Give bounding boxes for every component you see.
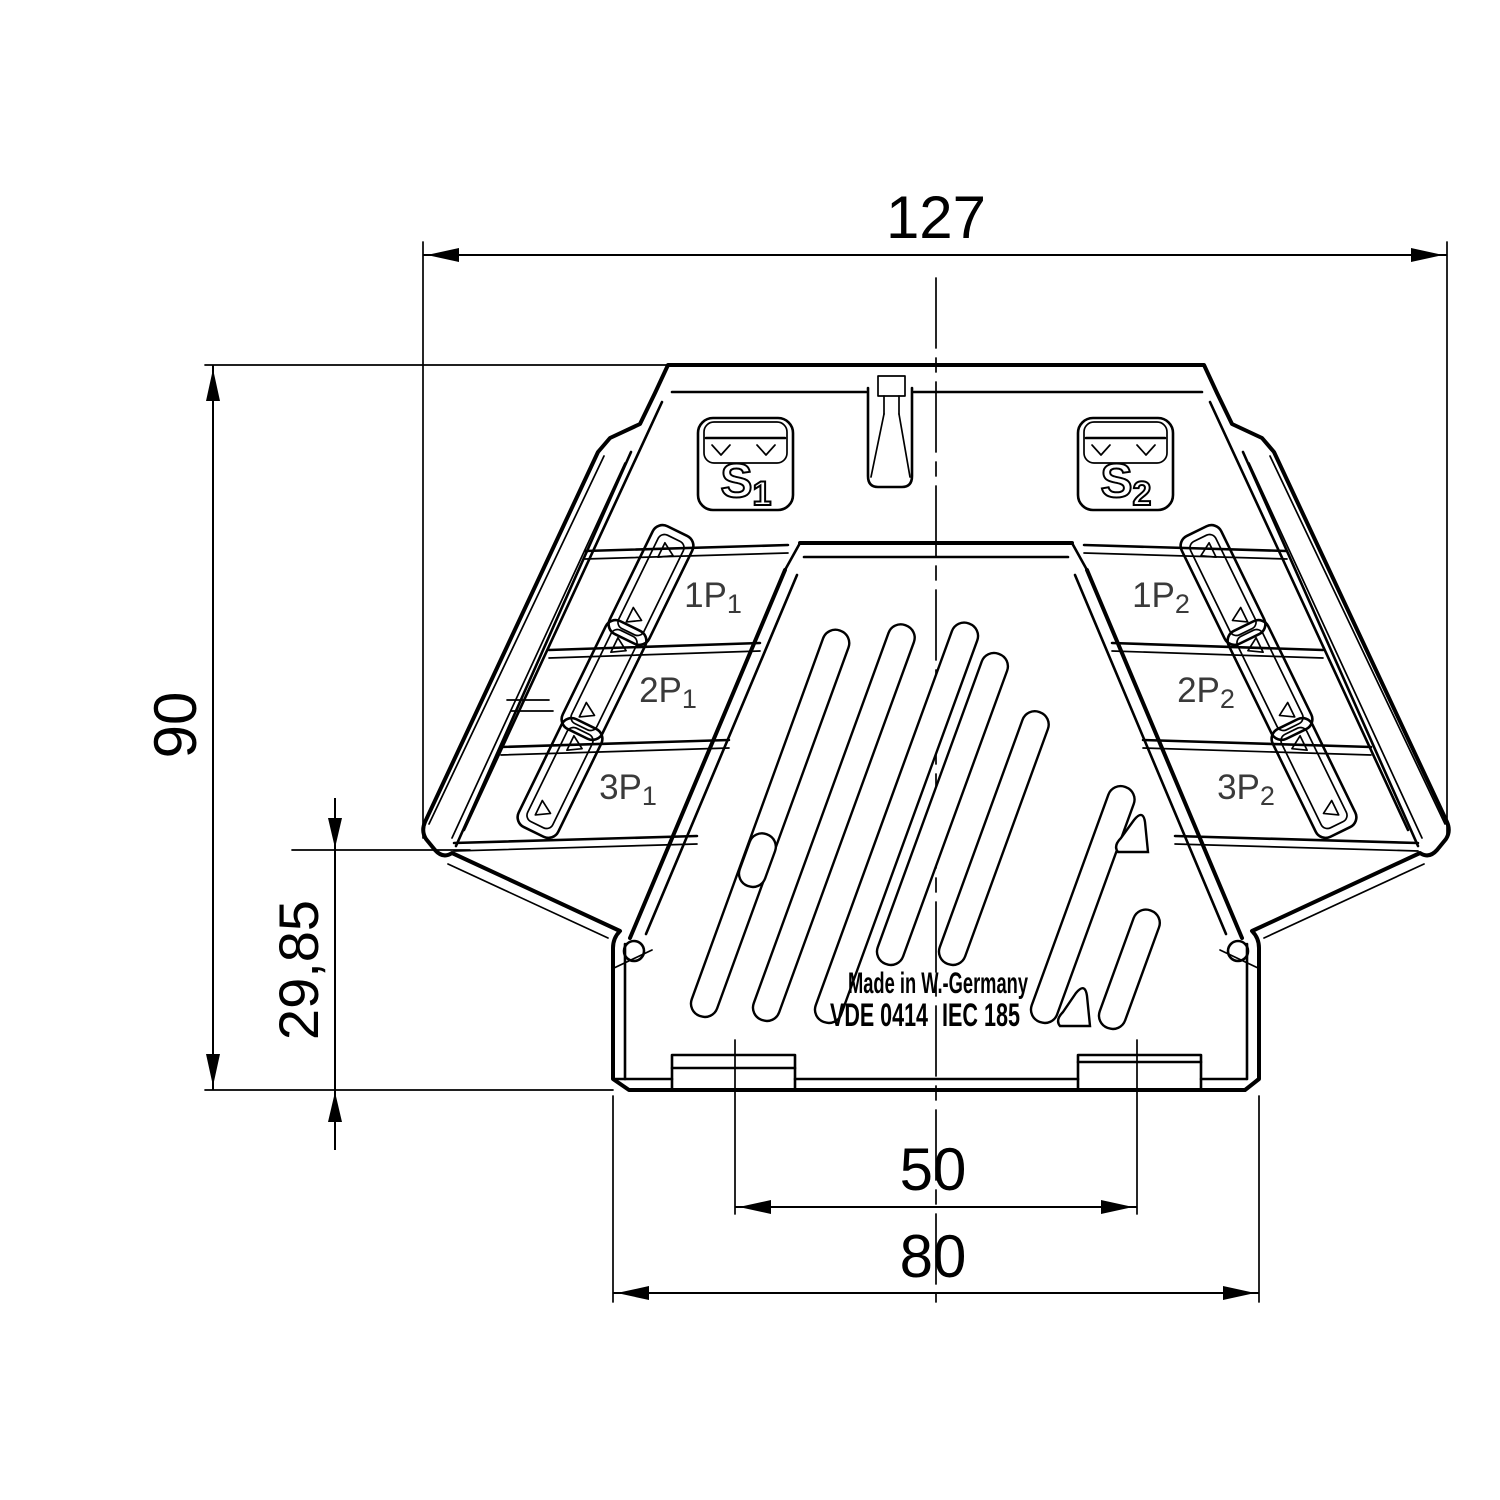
dim-29-85-label: 29,85 — [267, 900, 330, 1040]
top-latch-slot — [868, 376, 912, 487]
terminal-s1: S1 — [698, 418, 793, 513]
transformer-dimension-drawing: 127 90 29,85 50 — [0, 0, 1500, 1500]
label-2p2: 2P2 — [1177, 671, 1235, 714]
branding-text: Made in W.-Germany VDE 0414 IEC 185 — [830, 967, 1028, 1033]
dim-29-85: 29,85 — [267, 798, 470, 1150]
dim-80-label: 80 — [900, 1223, 967, 1290]
standard-vde-text: VDE 0414 — [830, 997, 928, 1033]
label-3p1: 3P1 — [599, 768, 657, 811]
right-mounting-foot — [1078, 1055, 1201, 1090]
label-2p1: 2P1 — [639, 671, 697, 714]
label-3p2: 3P2 — [1217, 768, 1275, 811]
dim-90-label: 90 — [142, 692, 209, 759]
terminal-s2: S2 — [1078, 418, 1173, 513]
technical-drawing-page: 127 90 29,85 50 — [0, 0, 1500, 1500]
label-1p2: 1P2 — [1132, 576, 1190, 619]
dim-127-label: 127 — [886, 184, 986, 251]
right-slope-inner-wall — [1210, 402, 1408, 830]
made-in-text: Made in W.-Germany — [848, 967, 1028, 1000]
left-mounting-foot — [672, 1055, 795, 1090]
dim-50-label: 50 — [900, 1136, 967, 1203]
label-1p1: 1P1 — [684, 576, 742, 619]
left-slope-inner-wall — [464, 402, 662, 830]
slot-3p2 — [1268, 714, 1360, 841]
standard-iec-text: IEC 185 — [942, 997, 1020, 1033]
slot-3p1 — [514, 714, 606, 841]
